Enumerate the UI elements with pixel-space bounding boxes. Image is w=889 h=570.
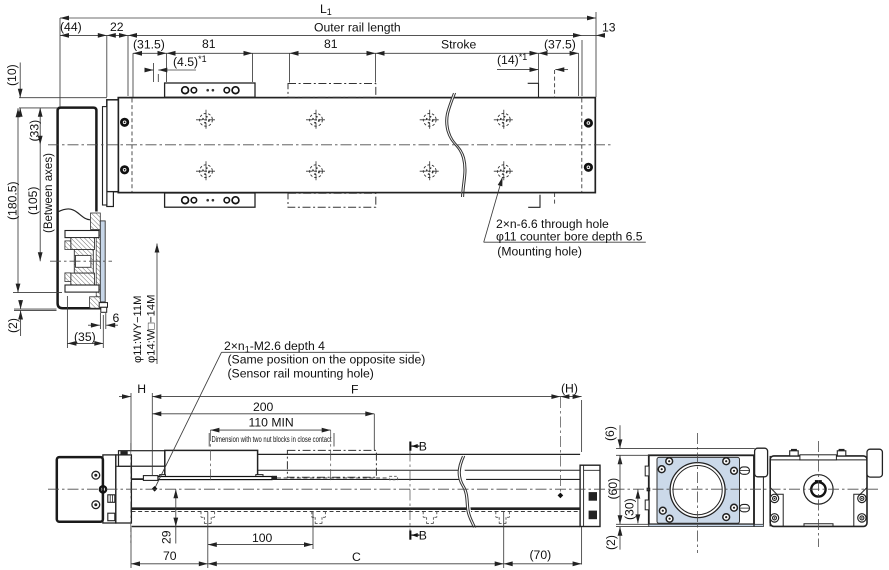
svg-text:(37.5): (37.5) [544,38,576,52]
svg-text:φ11:WY−11M: φ11:WY−11M [132,296,144,363]
svg-text:B: B [419,440,427,454]
svg-text:Outer rail length: Outer rail length [314,21,401,35]
svg-text:(70): (70) [530,548,552,562]
svg-text:200: 200 [253,400,274,414]
svg-text:(60): (60) [606,478,620,500]
svg-text:C: C [352,550,361,564]
svg-text:13: 13 [602,21,616,35]
svg-text:Stroke: Stroke [441,38,476,52]
svg-text:φ11 counter bore depth 6.5: φ11 counter bore depth 6.5 [496,229,643,243]
svg-text:φ14:W□−14M: φ14:W□−14M [146,295,158,363]
svg-text:Dimension with two nut blocks: Dimension with two nut blocks in close c… [212,434,332,444]
svg-text:(6): (6) [603,426,617,441]
svg-text:(30): (30) [623,498,637,520]
svg-text:(H): (H) [561,382,578,396]
svg-text:H: H [137,382,146,396]
svg-text:22: 22 [110,20,124,34]
svg-text:70: 70 [163,549,177,563]
svg-text:(105): (105) [26,187,40,215]
svg-text:6: 6 [113,311,120,325]
svg-text:(Between axes): (Between axes) [43,153,55,233]
svg-text:29: 29 [160,530,174,544]
svg-text:(2): (2) [6,318,20,333]
svg-text:F: F [351,383,358,397]
svg-text:(Sensor rail mounting hole): (Sensor rail mounting hole) [228,366,374,380]
svg-text:(10): (10) [5,64,19,86]
svg-text:(Mounting hole): (Mounting hole) [497,245,582,259]
svg-text:110 MIN: 110 MIN [249,416,294,430]
svg-text:(33): (33) [28,120,42,142]
svg-text:81: 81 [324,37,338,51]
svg-text:B: B [419,529,427,543]
svg-text:(Same position on the opposite: (Same position on the opposite side) [228,353,426,367]
svg-text:81: 81 [202,37,216,51]
svg-text:(44): (44) [60,20,82,34]
svg-text:(35): (35) [74,330,96,344]
svg-text:(31.5): (31.5) [133,38,165,52]
svg-text:(2): (2) [604,535,618,550]
svg-text:(180.5): (180.5) [6,181,20,220]
svg-text:100: 100 [252,531,273,545]
